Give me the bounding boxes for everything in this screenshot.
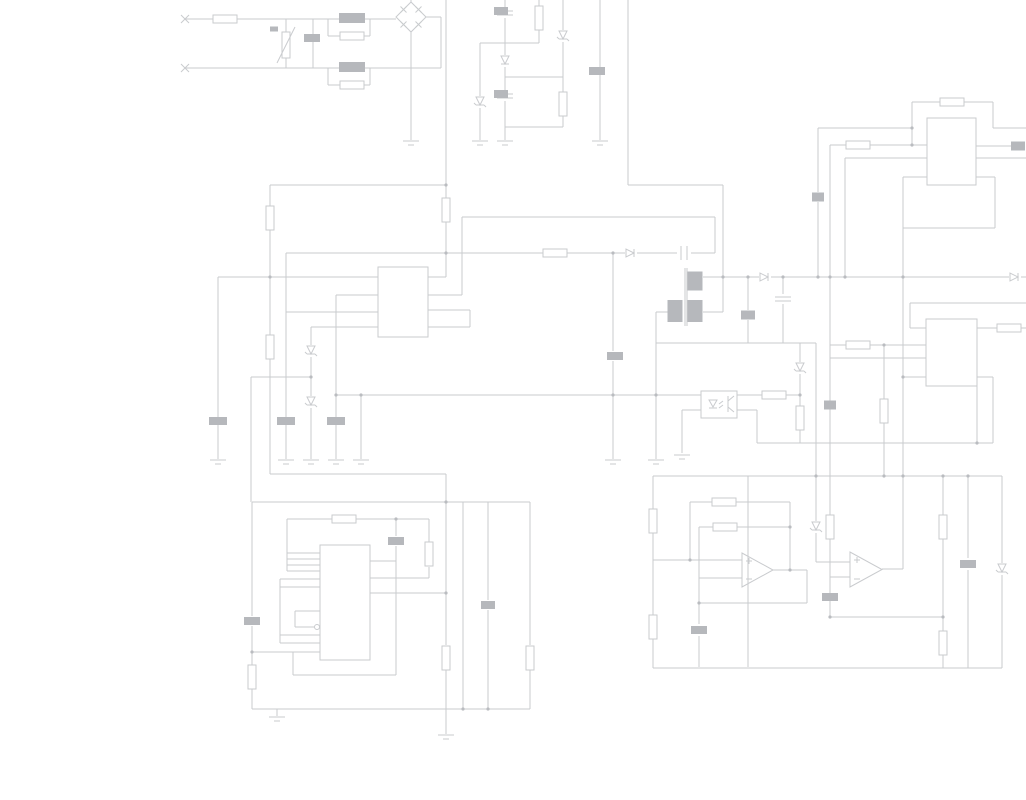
junction-dot	[781, 275, 784, 278]
zener-diode	[474, 103, 476, 105]
resistor	[213, 15, 237, 23]
clock-bubble-icon	[315, 625, 320, 630]
junction-dot	[882, 474, 885, 477]
resistor	[796, 406, 804, 430]
junction-dot	[941, 615, 944, 618]
resistor	[940, 98, 964, 106]
junction-dot	[268, 275, 271, 278]
label-blob	[494, 7, 508, 15]
resistor	[826, 515, 834, 539]
resistor	[713, 523, 737, 531]
junction-dot	[309, 375, 312, 378]
opamp	[850, 552, 882, 587]
resistor	[712, 498, 736, 506]
junction-dot	[461, 707, 464, 710]
zener-diode	[820, 530, 822, 532]
zener-diode	[1006, 572, 1008, 574]
zener-diode	[567, 39, 569, 41]
label-blob	[494, 90, 508, 98]
junction-dot	[901, 275, 904, 278]
junction-dot	[814, 474, 817, 477]
resistor	[332, 515, 356, 523]
junction-dot	[444, 251, 447, 254]
zener-diode	[810, 528, 812, 530]
label-blob	[339, 62, 365, 72]
ic-box	[320, 545, 370, 660]
label-blob	[589, 67, 605, 75]
resistor	[649, 615, 657, 639]
resistor	[846, 341, 870, 349]
label-blob	[607, 352, 623, 360]
resistor	[248, 665, 256, 689]
optocoupler	[701, 391, 737, 418]
junction-dot	[966, 474, 969, 477]
diode	[760, 273, 768, 281]
zener-diode	[559, 31, 567, 39]
transformer-winding	[688, 272, 703, 291]
zener-diode	[476, 97, 484, 105]
junction-dot	[334, 393, 337, 396]
label-blob	[244, 617, 260, 625]
resistor	[442, 646, 450, 670]
label-blob	[741, 311, 755, 320]
junction-dot	[910, 143, 913, 146]
zener-diode	[812, 522, 820, 530]
zener-diode	[305, 403, 307, 405]
diode	[1010, 273, 1018, 281]
optocoupler-arrow-icon	[719, 405, 723, 408]
label-blob	[277, 417, 295, 425]
zener-diode	[996, 570, 998, 572]
junction-dot	[798, 393, 801, 396]
resistor	[266, 206, 274, 230]
resistor	[442, 198, 450, 222]
zener-diode	[804, 371, 806, 373]
resistor	[880, 399, 888, 423]
zener-diode	[794, 369, 796, 371]
resistor	[340, 81, 364, 89]
label-blob	[388, 537, 404, 545]
opamp	[742, 553, 773, 587]
junction-dot	[721, 275, 724, 278]
zener-diode	[315, 405, 317, 407]
resistor	[846, 141, 870, 149]
junction-dot	[654, 393, 657, 396]
zener-diode	[307, 346, 315, 354]
resistor	[997, 324, 1021, 332]
junction-dot	[394, 517, 397, 520]
label-blob	[481, 601, 495, 609]
label-blob	[812, 193, 824, 202]
resistor	[543, 249, 567, 257]
junction-dot	[746, 275, 749, 278]
zener-diode	[305, 352, 307, 354]
junction-dot	[359, 393, 362, 396]
junction-dot	[828, 275, 831, 278]
resistor	[762, 391, 786, 399]
junction-dot	[901, 375, 904, 378]
diode	[501, 56, 509, 64]
junction-dot	[486, 707, 489, 710]
junction-dot	[910, 126, 913, 129]
optocoupler-led-icon	[709, 400, 717, 407]
junction-dot	[611, 393, 614, 396]
ic-box	[926, 319, 977, 386]
optocoupler-transistor-icon	[728, 396, 734, 401]
junction-dot	[843, 275, 846, 278]
junction-dot	[444, 183, 447, 186]
label-blob	[270, 27, 278, 32]
optocoupler-transistor-icon	[728, 407, 734, 412]
zener-diode	[998, 564, 1006, 572]
transformer-winding	[688, 300, 703, 322]
resistor	[535, 6, 543, 30]
zener-diode	[307, 397, 315, 405]
label-blob	[327, 417, 345, 425]
junction-dot	[788, 568, 791, 571]
diode	[626, 249, 634, 257]
label-blob	[960, 560, 976, 568]
ic-box	[927, 118, 976, 185]
junction-dot	[816, 275, 819, 278]
schematic-page	[0, 0, 1026, 800]
junction-dot	[882, 343, 885, 346]
resistor	[340, 32, 364, 40]
label-blob	[304, 34, 320, 42]
transformer-winding	[668, 300, 683, 322]
resistor	[559, 92, 567, 116]
junction-dot	[788, 525, 791, 528]
junction-dot	[250, 650, 253, 653]
junction-dot	[975, 441, 978, 444]
zener-diode	[557, 37, 559, 39]
label-blob	[691, 626, 707, 634]
label-blob	[339, 13, 365, 23]
junction-dot	[941, 474, 944, 477]
resistor	[939, 631, 947, 655]
junction-dot	[444, 591, 447, 594]
optocoupler-arrow-icon	[719, 401, 723, 404]
resistor	[939, 515, 947, 539]
resistor	[425, 542, 433, 566]
junction-dot	[828, 615, 831, 618]
junction-dot	[901, 474, 904, 477]
junction-dot	[688, 558, 691, 561]
zener-diode	[484, 105, 486, 107]
resistor	[266, 335, 274, 359]
label-blob	[209, 417, 227, 425]
junction-dot	[697, 601, 700, 604]
junction-dot	[611, 251, 614, 254]
label-blob	[822, 593, 838, 601]
zener-diode	[796, 363, 804, 371]
label-blob	[1011, 142, 1025, 151]
label-blob	[824, 401, 836, 410]
ic-box	[378, 267, 428, 337]
resistor	[649, 509, 657, 533]
junction-dot	[444, 500, 447, 503]
schematic-canvas	[0, 0, 1026, 800]
resistor	[526, 646, 534, 670]
zener-diode	[315, 354, 317, 356]
